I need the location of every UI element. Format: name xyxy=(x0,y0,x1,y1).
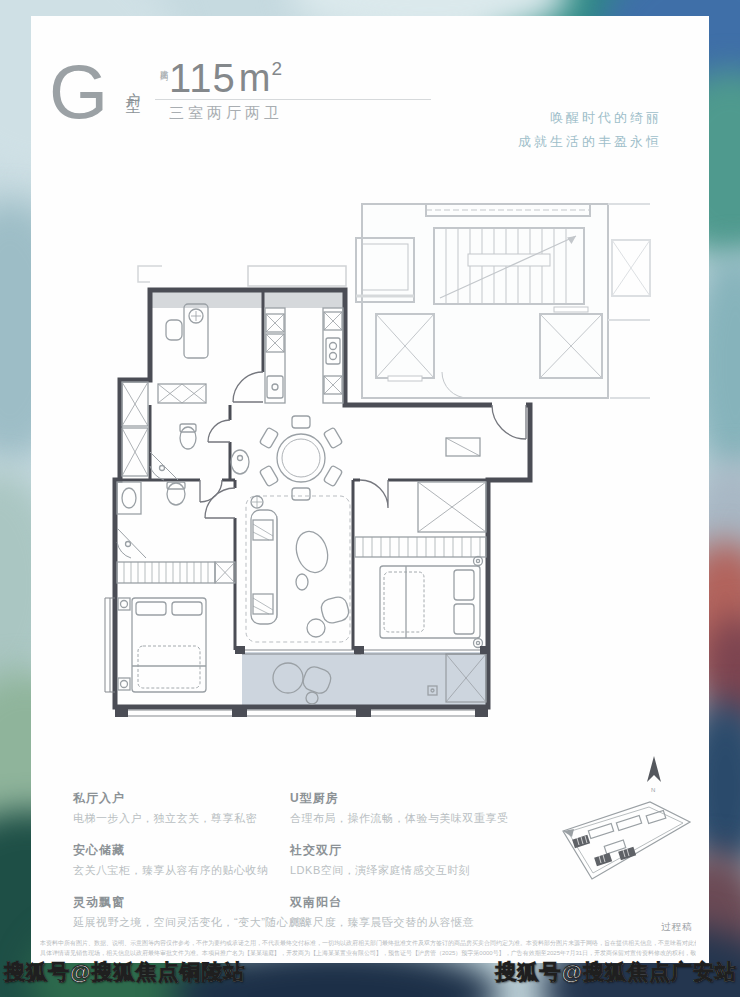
study-desk xyxy=(158,304,208,403)
watermark-bottom-left: 搜狐号@搜狐焦点铜陵站 xyxy=(4,958,245,986)
area-unit: m xyxy=(239,58,271,98)
master-wardrobe xyxy=(117,562,235,583)
top-closet-band xyxy=(152,292,343,308)
tagline-line2: 成就生活的丰盈永恒 xyxy=(518,130,662,154)
living-room xyxy=(246,496,351,642)
room-layout-text: 三室两厅两卫 xyxy=(169,104,283,123)
unit-type-label: 户型 xyxy=(123,80,142,92)
master-bathroom xyxy=(117,482,185,558)
north-arrow-icon: N xyxy=(647,756,661,793)
disclaimer: 本资料中所有图片、数据、说明、示意图等内容仅作参考，不作为要约或承诺之用，不代表… xyxy=(40,938,696,958)
master-bed xyxy=(118,598,206,692)
entry-cabinet xyxy=(446,438,480,456)
tagline: 唤醒时代的绮丽 成就生活的丰盈永恒 xyxy=(518,106,662,154)
features-left: 私厅入户 电梯一步入户，独立玄关，尊享私密 安心储藏 玄关八宝柜，臻享从容有序的… xyxy=(73,791,288,947)
feature-title: 双南阳台 xyxy=(290,895,505,909)
area-number: 115 xyxy=(169,58,236,98)
disclaimer-line2: 具体详情请见销售现场，相关信息以政府最终审批文件为准。本项目推广名为【某某瑞庭】… xyxy=(40,948,696,958)
feature-desc: 玄关八宝柜，臻享从容有序的贴心收纳 xyxy=(73,864,288,877)
area-prefix-label: 建面约 xyxy=(157,63,168,69)
feature-desc: 电梯一步入户，独立玄关，尊享私密 xyxy=(73,812,288,825)
kitchen-counters xyxy=(265,308,343,403)
neighbor-unit-ghost xyxy=(608,204,650,398)
feature-title: U型厨房 xyxy=(290,791,505,805)
center-balcony xyxy=(242,652,361,705)
feature-desc: 延展视野之境，空间灵活变化，“变大”随心所欲 xyxy=(73,916,288,929)
site-plan-icon: N xyxy=(501,735,701,910)
watermark-bottom-right: 搜狐号@搜狐焦点广安站 xyxy=(496,958,737,986)
feature-title: 私厅入户 xyxy=(73,791,288,805)
features-right: U型厨房 合理布局，操作流畅，体验与美味双重享受 社交双厅 LDKB空间，演绎家… xyxy=(290,791,505,947)
hall-storage xyxy=(122,382,148,476)
disclaimer-line1: 本资料中所有图片、数据、说明、示意图等内容仅作参考，不作为要约或承诺之用，不代表… xyxy=(40,938,696,948)
floorplan-svg xyxy=(88,180,652,765)
feature-title: 灵动飘窗 xyxy=(73,895,288,909)
feature-desc: 阔绰尺度，臻享晨昏交替的从容惬意 xyxy=(290,916,505,929)
area-value: 115 m 2 xyxy=(169,58,282,98)
north-label: N xyxy=(651,787,655,793)
guest-bathroom xyxy=(150,424,249,480)
dining-table xyxy=(259,416,342,500)
header-divider xyxy=(155,99,431,100)
site-plan-label: 过程稿 xyxy=(661,921,693,934)
area-exponent: 2 xyxy=(271,59,282,78)
bedroom2 xyxy=(355,482,486,648)
feature-title: 社交双厅 xyxy=(290,843,505,857)
tagline-line1: 唤醒时代的绮丽 xyxy=(518,106,662,130)
poster-card: G 户型 建面约 115 m 2 三室两厅两卫 唤醒时代的绮丽 成就生活的丰盈永… xyxy=(31,16,709,963)
unit-letter: G xyxy=(49,52,108,132)
feature-desc: 合理布局，操作流畅，体验与美味双重享受 xyxy=(290,812,505,825)
feature-title: 安心储藏 xyxy=(73,843,288,857)
feature-desc: LDKB空间，演绎家庭情感交互时刻 xyxy=(290,864,505,877)
